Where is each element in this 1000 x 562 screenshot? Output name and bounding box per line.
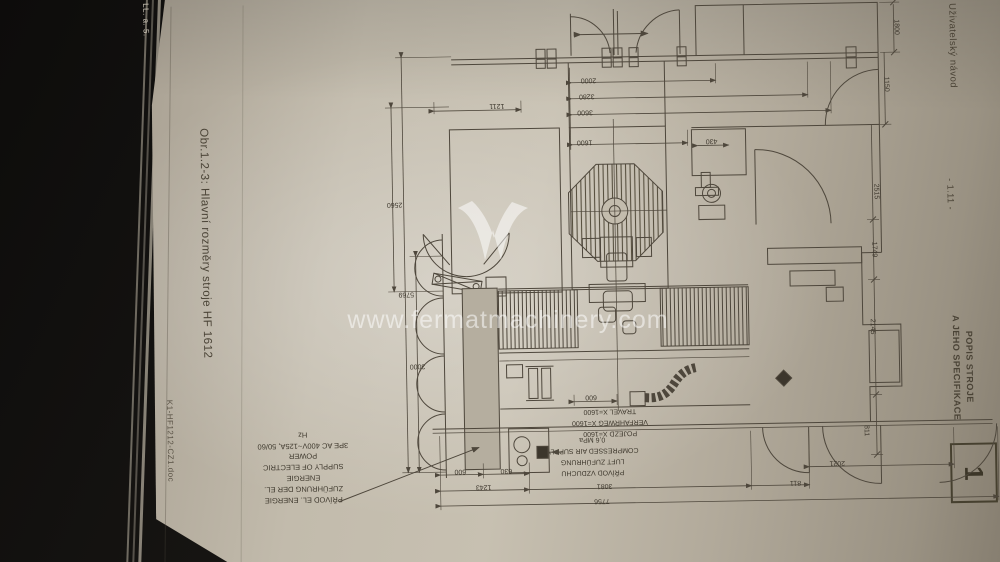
dimension-label: 3280 — [579, 92, 595, 99]
dimension-label: 3081 — [597, 482, 613, 489]
dimension-label: 2145 — [869, 319, 876, 335]
watermark-text: www.fermatmachinery.com — [338, 306, 678, 335]
fermat-w-logo — [452, 196, 532, 276]
paper-sheet-tilted: LL. a. 5. Obr.1.2-3: Hlavní rozměry stro… — [0, 0, 1000, 562]
photographed-manual-page: { "photo": { "watermark_text": "www.ferm… — [0, 0, 1000, 562]
dimension-label: 600 — [585, 393, 597, 400]
dimension-label: 811 — [863, 425, 870, 436]
dimension-label: 5769 — [398, 291, 414, 298]
dimension-label: 2560 — [387, 201, 403, 208]
dimension-label: 3600 — [577, 108, 593, 115]
dimension-label: 1211 — [489, 102, 504, 109]
dimension-label: 3000 — [410, 362, 426, 369]
dimension-label: 2021 — [829, 459, 845, 466]
dimension-label: 1600 — [577, 138, 593, 145]
dimension-label: 1243 — [476, 483, 492, 490]
dimension-label: 7756 — [594, 497, 610, 504]
dimension-label: 1800 — [893, 19, 900, 35]
dimension-label: 600 — [454, 468, 466, 475]
dimension-label: 630 — [500, 467, 512, 474]
dimension-label: 2515 — [872, 184, 879, 200]
dimension-label: 2000 — [581, 76, 597, 83]
dimension-label: 811 — [790, 479, 801, 486]
machine-floorplan-drawing: 2000328036001600121143018001150251517492… — [0, 0, 1000, 562]
dimension-label: 1150 — [883, 77, 890, 92]
dimension-label: 1749 — [870, 242, 877, 258]
dimension-label: 430 — [706, 137, 718, 144]
